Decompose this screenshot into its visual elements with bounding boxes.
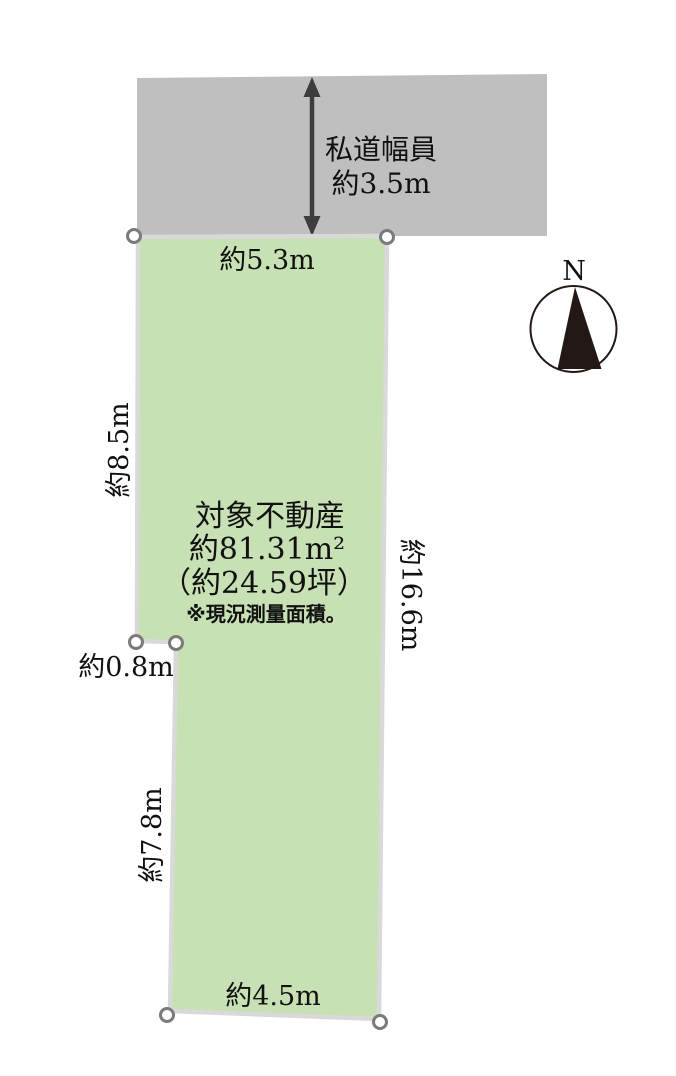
compass: N xyxy=(531,256,617,372)
dimension-label-bottom: 約4.5m xyxy=(225,981,321,1012)
site-plan-page: 私道幅員 約3.5m 約5.3m 約8.5m 約0.8m 約7.8m 約16.6… xyxy=(0,0,676,1076)
property-title: 対象不動産 xyxy=(195,499,345,534)
property-area-m2: 約81.31m² xyxy=(189,532,345,567)
property-lot-shape xyxy=(137,236,387,1019)
property-note: ※現況測量面積。 xyxy=(186,602,345,626)
survey-marker-bottom-left xyxy=(161,1009,174,1022)
property-area-tsubo: （約24.59坪） xyxy=(161,566,367,601)
dimension-label-top: 約5.3m xyxy=(219,245,315,276)
survey-marker-notch-right xyxy=(170,637,183,650)
survey-marker-bottom-right xyxy=(374,1016,387,1029)
dimension-label-left-upper: 約8.5m xyxy=(104,402,135,498)
dimension-label-notch: 約0.8m xyxy=(78,652,174,683)
compass-north-label: N xyxy=(562,256,586,287)
road-width-label-line2: 約3.5m xyxy=(331,167,430,200)
site-plan-diagram: 私道幅員 約3.5m 約5.3m 約8.5m 約0.8m 約7.8m 約16.6… xyxy=(0,0,676,1076)
dimension-label-left-lower: 約7.8m xyxy=(137,787,168,883)
dimension-label-right: 約16.6m xyxy=(395,539,426,652)
road-width-label-line1: 私道幅員 xyxy=(325,133,437,166)
survey-marker-top-left xyxy=(128,230,141,243)
survey-marker-notch-left xyxy=(130,636,143,649)
survey-marker-top-right xyxy=(381,231,394,244)
